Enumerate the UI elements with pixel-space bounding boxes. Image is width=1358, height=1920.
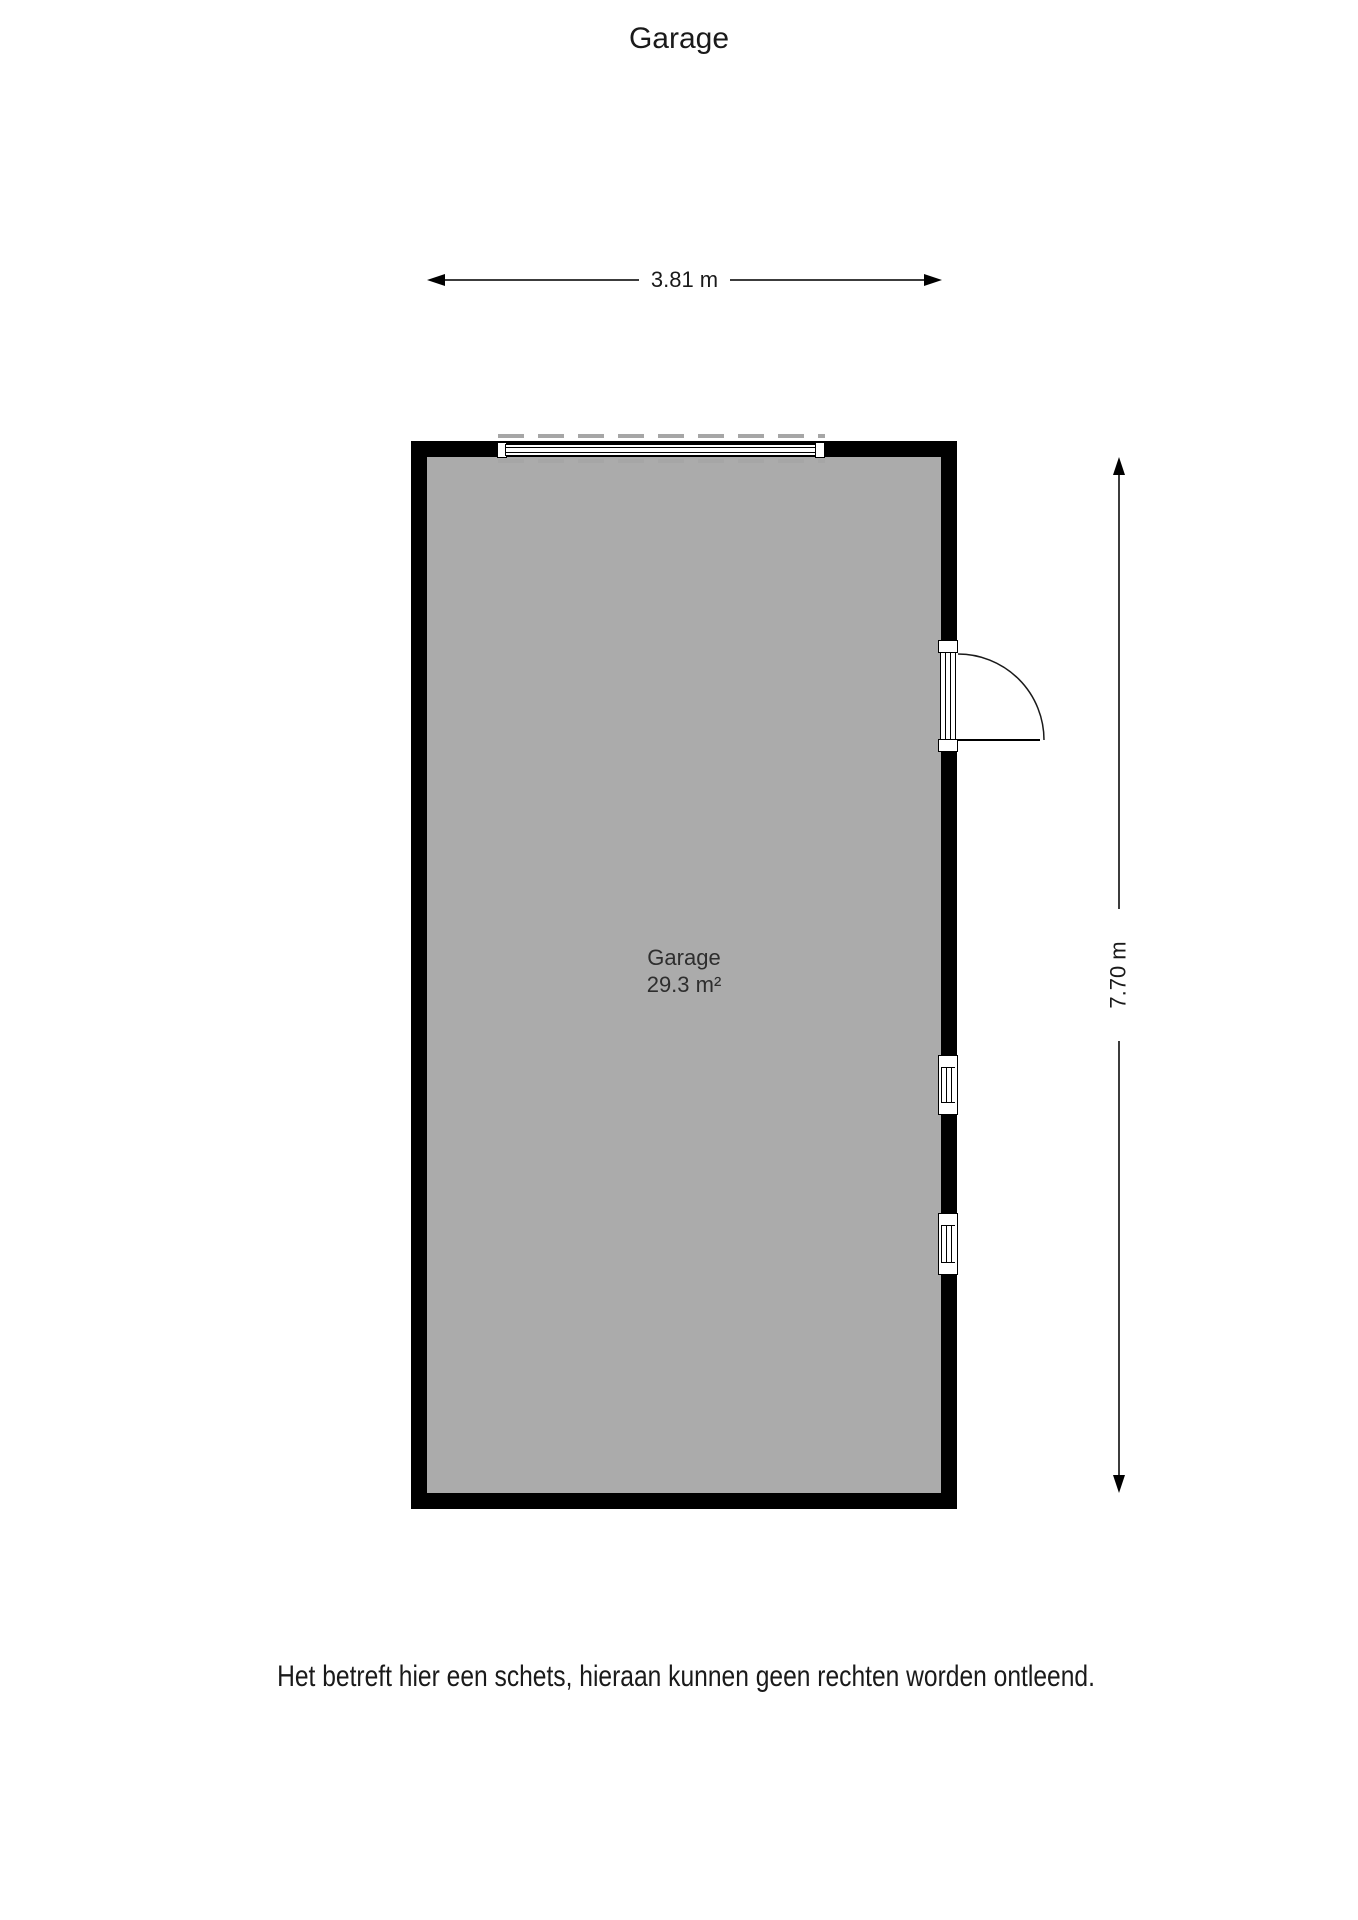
- dimension-arrow-left-icon: [427, 274, 445, 286]
- page-title: Garage: [0, 22, 1358, 56]
- width-dimension: 3.81 m: [427, 266, 942, 294]
- garage-door: [505, 444, 817, 456]
- disclaimer-text: Het betreft hier een schets, hieraan kun…: [277, 1660, 1095, 1694]
- room-area: 29.3 m²: [427, 971, 941, 998]
- window: [938, 1055, 958, 1115]
- width-dimension-label: 3.81 m: [651, 267, 718, 293]
- door-swing-arc: [957, 653, 1045, 741]
- room-name: Garage: [427, 944, 941, 971]
- height-dimension: 7.70 m: [1107, 457, 1131, 1493]
- dimension-arrow-down-icon: [1113, 1475, 1125, 1493]
- dimension-arrow-up-icon: [1113, 457, 1125, 475]
- dimension-line: [730, 279, 924, 281]
- height-dimension-label: 7.70 m: [1107, 919, 1131, 1031]
- door-jamb-bottom: [938, 739, 958, 752]
- floorplan-page: Garage 3.81 m 7.70 m: [0, 0, 1358, 1920]
- dimension-line: [1118, 475, 1120, 909]
- dimension-line: [445, 279, 639, 281]
- dimension-arrow-right-icon: [924, 274, 942, 286]
- window: [938, 1213, 958, 1275]
- window-glass: [941, 1067, 955, 1103]
- room-label: Garage 29.3 m²: [427, 944, 941, 998]
- window-glass: [941, 1225, 955, 1263]
- garage-door-dash-outside: [498, 434, 825, 438]
- door-opening: [940, 652, 957, 740]
- garage-door-slat: [506, 447, 816, 453]
- garage-door-jamb-right: [815, 442, 825, 458]
- dimension-line: [1118, 1041, 1120, 1475]
- garage-door-dash-inside: [498, 459, 825, 463]
